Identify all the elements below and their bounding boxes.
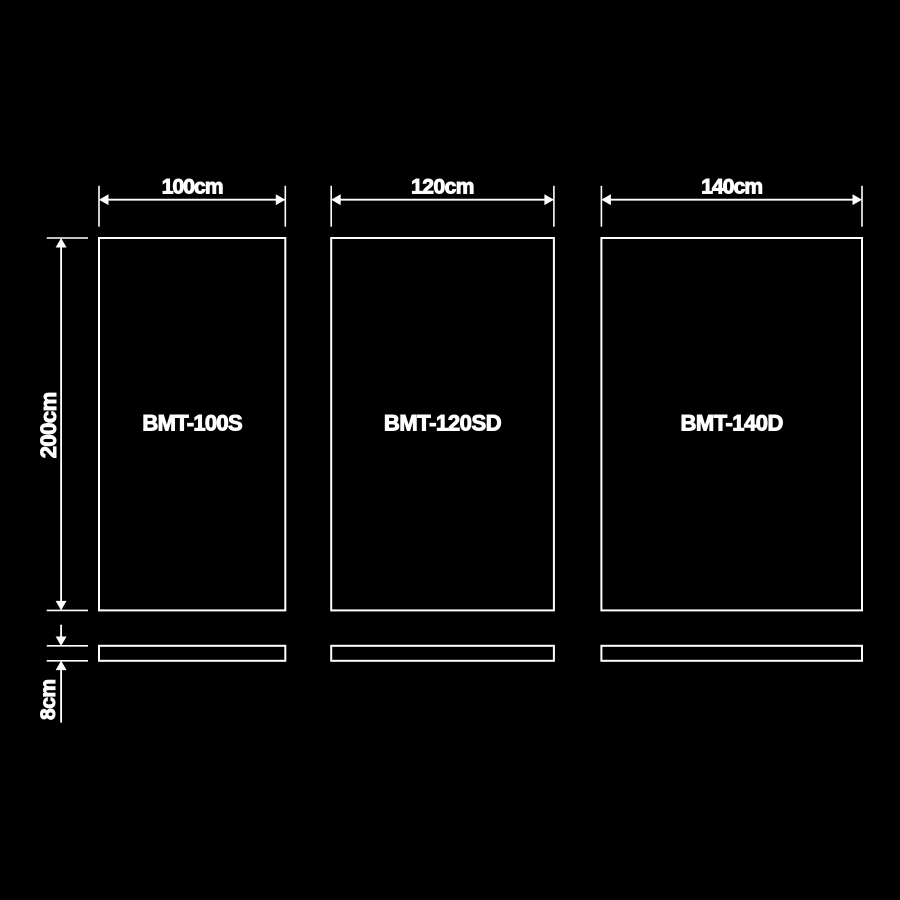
svg-text:8cm: 8cm: [37, 679, 60, 720]
svg-text:140cm: 140cm: [701, 175, 762, 198]
svg-text:120cm: 120cm: [411, 175, 474, 198]
svg-text:BMT-100S: BMT-100S: [142, 410, 242, 435]
svg-text:BMT-120SD: BMT-120SD: [384, 410, 501, 435]
svg-text:BMT-140D: BMT-140D: [681, 410, 783, 435]
svg-text:200cm: 200cm: [36, 392, 61, 458]
svg-text:100cm: 100cm: [162, 175, 223, 198]
